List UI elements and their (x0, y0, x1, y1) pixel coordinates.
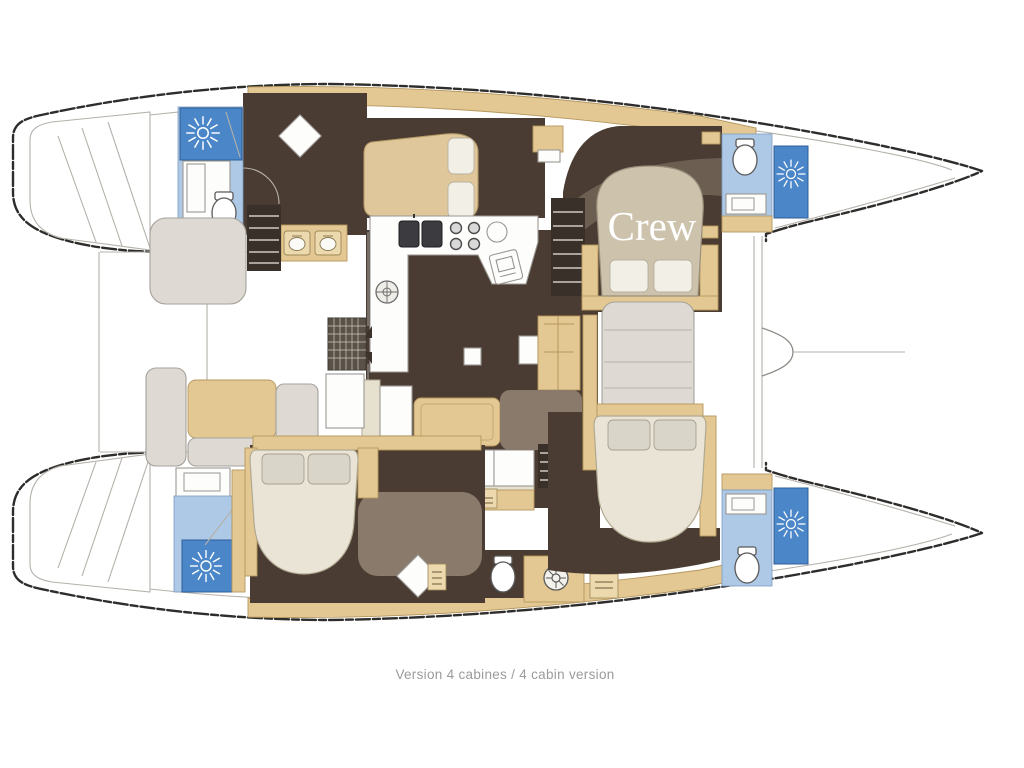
shower-pan (182, 540, 232, 592)
crew-cabin-joinery (700, 245, 718, 300)
aft-starboard-berth (250, 450, 358, 574)
prep-bowl-icon (487, 222, 507, 242)
forward-port-head (722, 134, 808, 232)
sofa-seat (494, 450, 534, 486)
salon-seat (519, 336, 538, 364)
hatch-icon (376, 281, 398, 303)
sink-icon (315, 231, 341, 255)
pillow (610, 260, 648, 292)
pillow (448, 182, 474, 218)
pillow (262, 454, 304, 484)
foredeck-bench (602, 302, 694, 414)
cockpit-bench-left (146, 368, 186, 466)
crew-label: Crew (608, 203, 697, 249)
pillow (654, 420, 696, 450)
toilet-icon (735, 547, 759, 583)
head-door (187, 164, 205, 212)
chart-table (538, 316, 580, 390)
crew-cabin-joinery (582, 245, 598, 300)
plan-caption: Version 4 cabines / 4 cabin version (395, 667, 614, 682)
crew-stairs (551, 198, 585, 296)
vanity-double-sink (281, 225, 347, 261)
aft-port-stairs (247, 205, 281, 271)
cockpit-sunbed (150, 218, 246, 304)
cockpit-module (326, 374, 364, 428)
crew-cabin: Crew (551, 126, 722, 312)
aft-starboard-head (174, 468, 245, 592)
sofa-seat (380, 386, 412, 436)
cockpit-bench-right (276, 384, 318, 442)
forward-cockpit (602, 302, 694, 414)
bowsprit-bracket (762, 328, 793, 376)
head-joinery (722, 216, 772, 232)
crew-shelf (702, 132, 720, 144)
mast-post (464, 348, 481, 365)
cabin-joinery (358, 448, 378, 498)
head-joinery (722, 474, 772, 490)
locker-icon (590, 574, 618, 598)
galley-locker (533, 126, 563, 152)
aft-port-head (178, 107, 243, 232)
aft-port-berth (364, 134, 478, 223)
crew-shelf (702, 226, 718, 238)
galley-step (538, 150, 560, 162)
cockpit-grate (328, 318, 366, 370)
pillow (608, 420, 650, 450)
pillow (654, 260, 692, 292)
locker-icon (428, 564, 446, 590)
pillow (448, 138, 474, 174)
pillow (308, 454, 350, 484)
toilet-icon (733, 139, 757, 175)
toilet-icon (491, 556, 515, 592)
catamaran-deck-plan: Crew (0, 0, 1024, 768)
head-joinery (232, 470, 245, 592)
cockpit-table (188, 380, 276, 438)
sink-icon (284, 231, 310, 255)
shower-pan (774, 488, 808, 564)
forward-starboard-berth (594, 416, 706, 542)
aft-starboard-cabin (245, 436, 485, 603)
